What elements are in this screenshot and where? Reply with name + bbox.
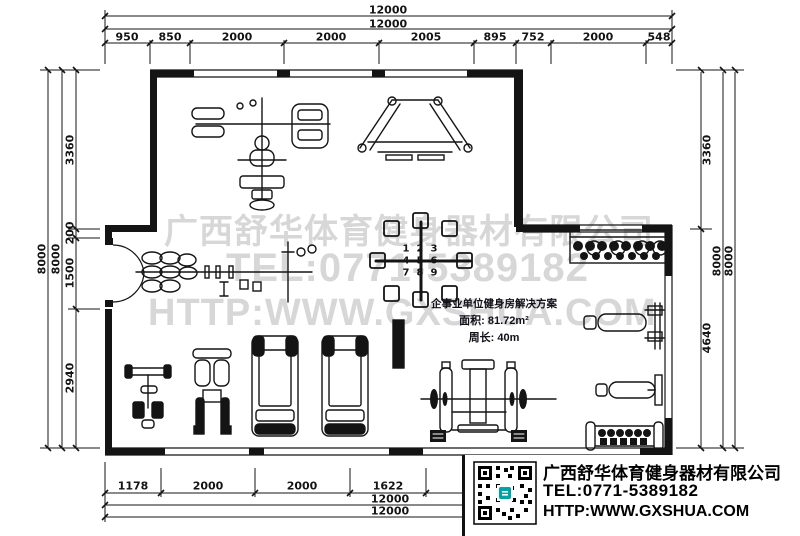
column <box>393 320 404 368</box>
door-leaf-top <box>105 238 113 245</box>
gym-station-number: 5 <box>417 256 424 267</box>
double-door-swing <box>113 245 144 302</box>
solution-area: 面积: 81.72m² <box>430 312 558 328</box>
bench-press-station <box>421 360 556 442</box>
plate-rack <box>586 422 663 450</box>
gym-station-number: 4 <box>403 256 410 267</box>
elliptical-machine <box>193 349 231 434</box>
treadmill <box>322 336 368 436</box>
qr-code <box>473 461 537 525</box>
bench-with-rack <box>584 303 664 349</box>
dim-bottom-seg: 1622 <box>373 480 404 493</box>
dim-top-seg: 2000 <box>583 31 614 44</box>
dim-top-seg: 950 <box>116 31 139 44</box>
door-leaf-bottom <box>105 300 113 307</box>
dim-right-total-outer: 8000 <box>723 246 736 277</box>
dim-right-seg: 4640 <box>701 323 714 354</box>
dim-bottom-seg: 1178 <box>118 480 149 493</box>
dim-left-total-outer: 8000 <box>36 244 49 275</box>
dim-top-seg: 752 <box>522 31 545 44</box>
dim-top-seg: 2005 <box>411 31 442 44</box>
dim-top-total-inner: 12000 <box>369 18 407 31</box>
gym-station-number: 8 <box>417 268 424 279</box>
barbell-plate-station <box>136 242 316 302</box>
gym-station-number: 6 <box>431 256 438 267</box>
flat-bench <box>596 375 662 405</box>
solution-title: 企事业单位健身房解决方案 <box>430 296 558 311</box>
dim-left-seg: 2940 <box>64 363 77 394</box>
dim-bottom-total-outer: 12000 <box>371 505 409 518</box>
exercise-bike <box>125 365 171 428</box>
shoulder-press-machine <box>192 98 330 210</box>
dim-top-seg: 895 <box>484 31 507 44</box>
dim-left-seg: 3360 <box>64 135 77 166</box>
dim-top-seg: 548 <box>648 31 671 44</box>
solution-perimeter: 周长: 40m <box>430 329 558 345</box>
solution-text-box: 企事业单位健身房解决方案 面积: 81.72m² 周长: 40m <box>430 296 558 345</box>
floor-plan-page: 广西舒华体育健身器材有限公司 TEL:0771-5389182 HTTP:WWW… <box>0 0 800 536</box>
gym-station-number: 9 <box>431 268 438 279</box>
logo-telephone: TEL:0771-5389182 <box>543 481 698 501</box>
gym-station-number: 1 <box>403 244 410 255</box>
squat-rack-frame <box>358 97 472 160</box>
dim-left-seg: 1500 <box>64 258 77 289</box>
dim-left-total-inner: 8000 <box>50 244 63 275</box>
dim-top-seg: 2000 <box>316 31 347 44</box>
dim-bottom-seg: 2000 <box>193 480 224 493</box>
dim-top-seg: 2000 <box>222 31 253 44</box>
gym-station-number: 3 <box>431 244 438 255</box>
dim-top-total-outer: 12000 <box>369 4 407 17</box>
treadmill <box>252 336 298 436</box>
company-logo-block: 广西舒华体育健身器材有限公司 TEL:0771-5389182 HTTP:WWW… <box>462 455 800 536</box>
dim-bottom-seg: 2000 <box>287 480 318 493</box>
dim-right-seg: 3360 <box>701 135 714 166</box>
dim-left-seg: 200 <box>64 222 77 245</box>
gym-station-number: 2 <box>417 244 424 255</box>
dimension-lines <box>40 10 744 522</box>
gym-station-number: 7 <box>403 268 410 279</box>
dumbbell-rack <box>570 230 670 263</box>
logo-website: HTTP:WWW.GXSHUA.COM <box>543 503 749 521</box>
dim-top-seg: 850 <box>159 31 182 44</box>
